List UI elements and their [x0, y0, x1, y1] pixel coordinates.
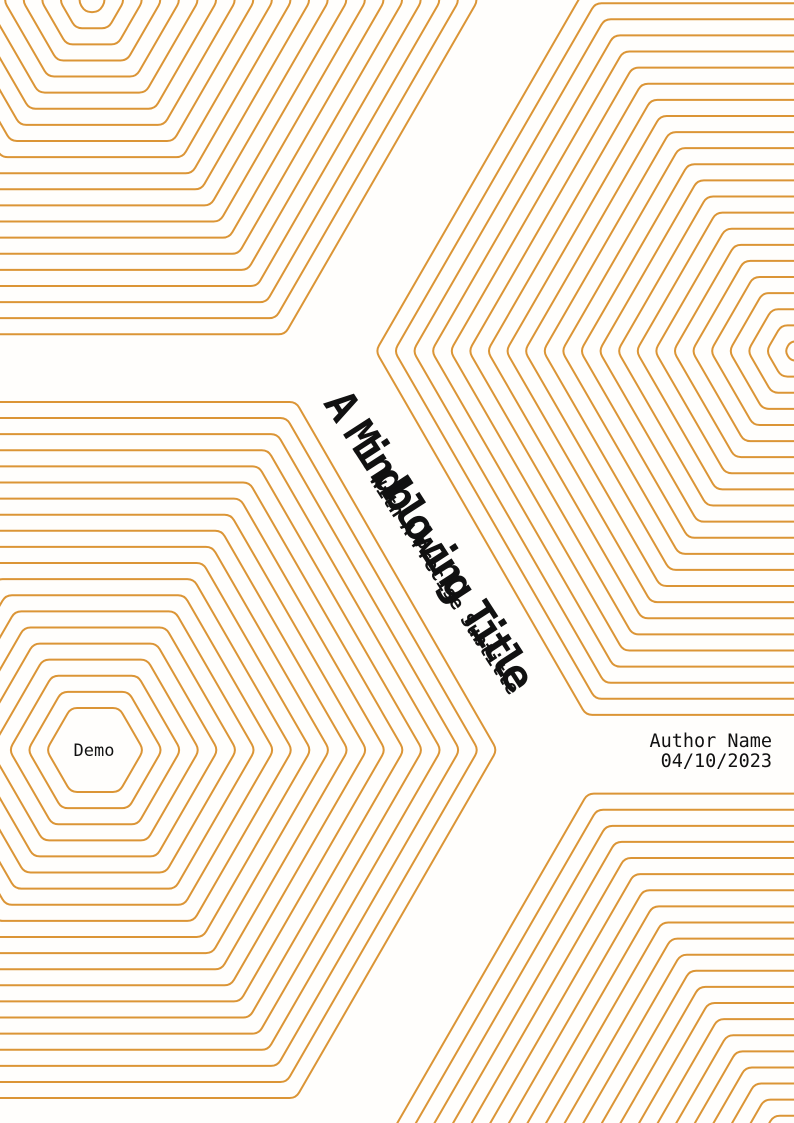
hexagon-ring: [80, 0, 105, 12]
hexagon-ring: [749, 309, 794, 392]
hexagon-ring: [712, 277, 794, 425]
hexagon-ring: [42, 0, 141, 44]
hexagon-cluster-right: [377, 0, 794, 715]
hexagon-ring: [452, 52, 794, 651]
author-name: Author Name: [500, 732, 772, 752]
hexagon-ring: [638, 213, 794, 490]
hexagon-ring: [377, 0, 794, 715]
hexagon-ring: [731, 293, 794, 409]
demo-label: Demo: [48, 741, 140, 761]
hexagon-ring: [0, 0, 402, 270]
hexagon-ring: [526, 116, 794, 586]
cover-page: A Mindblowing Title With A Precise Subti…: [0, 0, 794, 1123]
hexagon-ring: [0, 0, 309, 189]
hexagon-ring: [0, 563, 309, 937]
hexagon-ring: [508, 100, 794, 602]
hexagon-ring: [470, 68, 794, 635]
hexagon-ring: [474, 922, 794, 1123]
hexagon-ring: [0, 579, 291, 921]
hexagon-cluster-bottom-right: [326, 794, 794, 1123]
hexagon-ring: [698, 1116, 794, 1123]
hexagon-ring: [61, 0, 123, 28]
hexagon-ring: [582, 164, 794, 537]
hexagon-ring: [786, 341, 794, 360]
hexagon-ring: [400, 858, 794, 1123]
hexagon-ring: [344, 810, 794, 1123]
hexagon-line-art: [0, 0, 794, 1123]
hexagon-cluster-top-left: [0, 0, 476, 334]
hexagon-ring: [437, 890, 794, 1123]
hexagon-ring: [381, 842, 794, 1123]
hexagon-ring: [433, 35, 794, 666]
hexagon-ring: [623, 1051, 794, 1123]
hexagon-ring: [605, 1035, 794, 1123]
hexagon-ring: [563, 148, 794, 554]
hexagon-ring: [0, 0, 272, 157]
hexagon-ring: [0, 0, 365, 238]
hexagon-ring: [0, 0, 328, 205]
hexagon-ring: [24, 0, 160, 60]
author-block: Author Name 04/10/2023: [500, 732, 772, 772]
hexagon-ring: [0, 0, 290, 173]
hexagon-ring: [656, 229, 794, 474]
hexagon-ring: [0, 0, 235, 125]
hexagon-ring: [0, 0, 253, 141]
hexagon-ring: [0, 0, 476, 334]
hexagon-ring: [642, 1067, 794, 1123]
hexagon-ring: [530, 971, 794, 1123]
hexagon-ring: [768, 325, 794, 376]
publication-date: 04/10/2023: [500, 752, 772, 772]
